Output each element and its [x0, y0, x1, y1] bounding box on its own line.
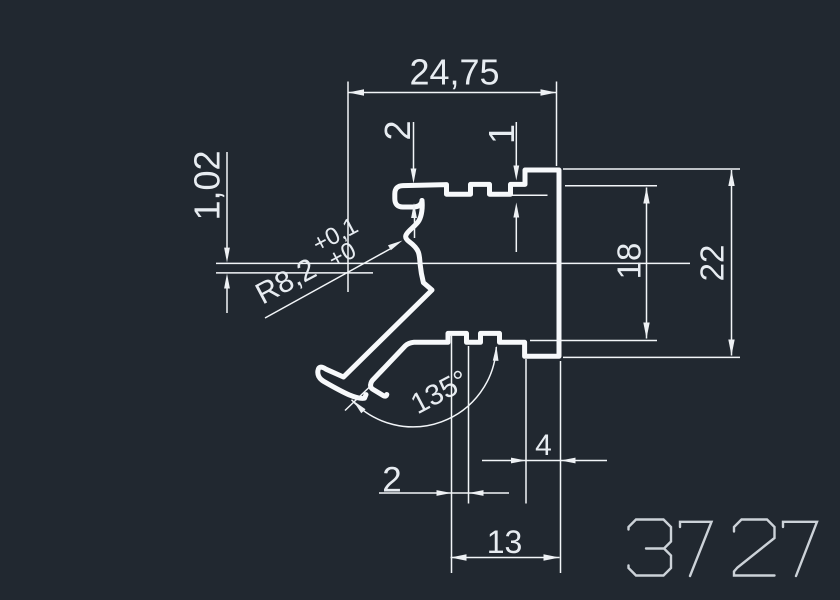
svg-text:1,02: 1,02	[187, 150, 228, 220]
svg-text:13: 13	[487, 524, 523, 560]
svg-text:1: 1	[481, 124, 522, 144]
svg-text:2: 2	[377, 120, 418, 140]
svg-text:2: 2	[382, 461, 401, 500]
svg-text:4: 4	[535, 429, 552, 462]
svg-text:22: 22	[694, 245, 731, 282]
svg-text:24,75: 24,75	[409, 52, 499, 93]
svg-text:18: 18	[611, 243, 648, 280]
